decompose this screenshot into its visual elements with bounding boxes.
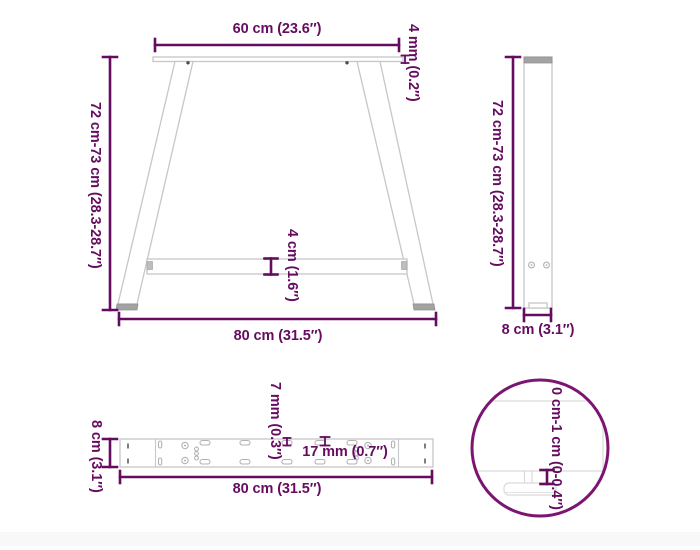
detail-view-adjustable-foot: [472, 380, 608, 516]
crossbar-bracket-right: [402, 262, 408, 270]
diagram-artwork: [0, 0, 700, 550]
detail-leg-bottom: [472, 401, 603, 471]
top-slot-label: 17 mm (0.7″): [285, 445, 405, 461]
side-foot: [529, 303, 547, 308]
front-crossbar-label: 4 cm (1.6″): [283, 226, 299, 304]
front-top-plate: [153, 57, 403, 62]
side-depth-label: 8 cm (3.1″): [478, 323, 598, 339]
top-small-hole-label: 7 mm (0.3″): [266, 385, 282, 457]
screw-hole-dot: [531, 264, 533, 266]
front-right-foot: [413, 304, 435, 310]
front-plate-thickness-label: 4 mm (0.2″): [404, 18, 420, 108]
screw-icon: [345, 61, 348, 64]
side-leg-body: [524, 57, 552, 308]
front-bottom-width-label: 80 cm (31.5″): [158, 329, 398, 345]
front-crossbar: [147, 259, 407, 274]
front-height-label: 72 cm-73 cm (28.3-28.7″): [86, 60, 102, 310]
top-length-label: 80 cm (31.5″): [157, 482, 397, 498]
screw-hole-dot: [546, 264, 548, 266]
front-left-foot: [116, 304, 138, 310]
side-height-label: 72 cm-73 cm (28.3-28.7″): [488, 57, 504, 309]
front-view-a-frame-leg: [116, 57, 435, 310]
detail-foot-adjustment-label: 0 cm-1 cm (0-0.4″): [547, 392, 563, 505]
side-top-cap: [524, 57, 552, 63]
front-top-width-label: 60 cm (23.6″): [157, 22, 397, 38]
top-depth-label: 8 cm (3.1″): [87, 420, 103, 492]
side-view-leg: [524, 57, 552, 308]
screw-icon: [186, 61, 189, 64]
crossbar-bracket-left: [147, 262, 153, 270]
product-dimension-diagram: 60 cm (23.6″) 4 mm (0.2″) 72 cm-73 cm (2…: [0, 0, 700, 550]
background-band: [0, 532, 700, 546]
detail-content: [472, 401, 603, 495]
